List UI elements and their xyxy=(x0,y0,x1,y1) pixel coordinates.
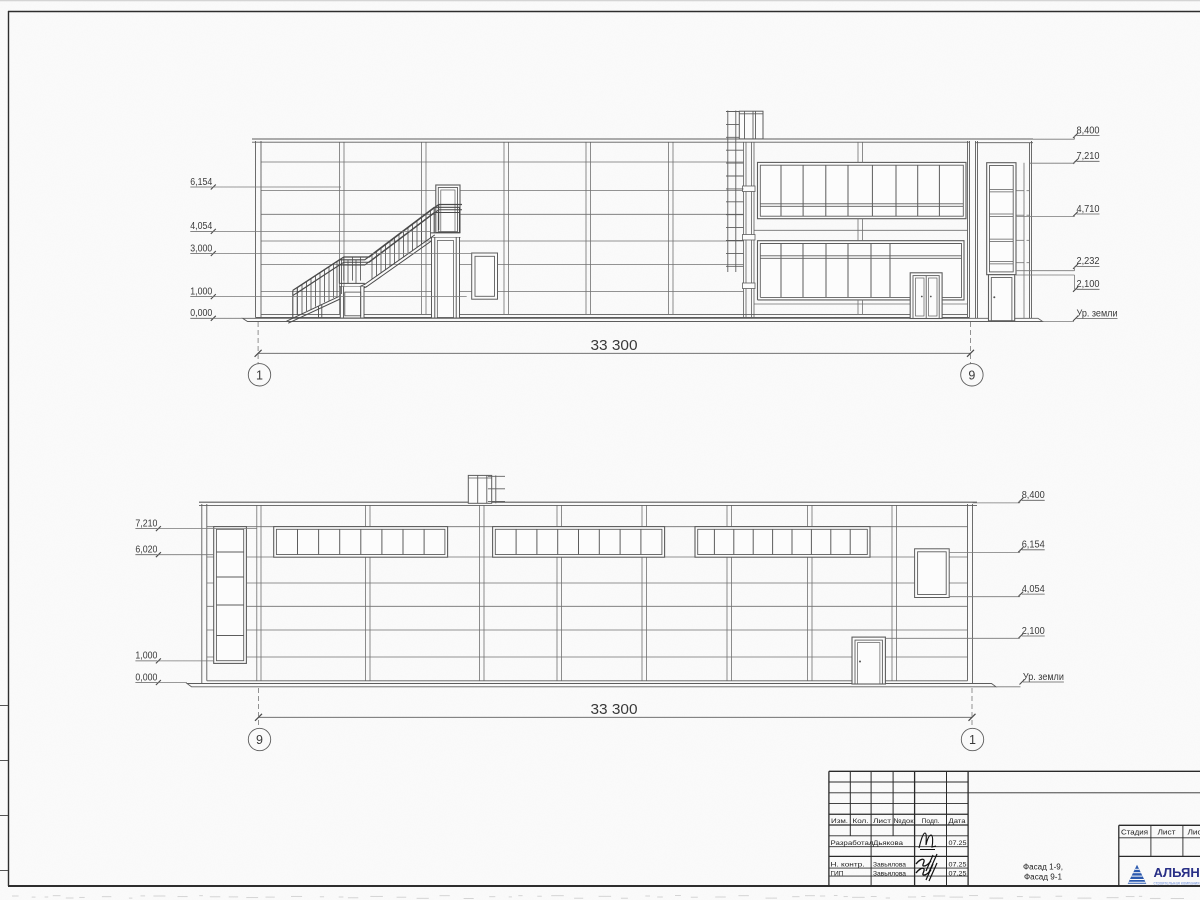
svg-text:Подп.: Подп. xyxy=(922,818,940,825)
svg-text:Изм.: Изм. xyxy=(831,818,848,825)
svg-text:АЛЬЯНС: АЛЬЯНС xyxy=(1154,865,1200,880)
svg-text:Дьякова: Дьякова xyxy=(873,840,904,847)
svg-text:№док: №док xyxy=(894,818,914,825)
svg-text:07.25: 07.25 xyxy=(949,861,968,868)
svg-text:8,400: 8,400 xyxy=(1077,125,1100,136)
svg-text:07.25: 07.25 xyxy=(949,840,968,847)
svg-text:1,000: 1,000 xyxy=(135,651,157,662)
svg-text:0,000: 0,000 xyxy=(190,308,212,319)
svg-text:Разработал: Разработал xyxy=(831,840,874,847)
svg-text:6,154: 6,154 xyxy=(190,177,212,188)
svg-text:6,020: 6,020 xyxy=(135,545,157,556)
svg-text:07.25: 07.25 xyxy=(949,871,968,878)
svg-text:Лист: Лист xyxy=(1158,830,1177,837)
svg-text:Кол.: Кол. xyxy=(853,818,869,825)
svg-text:3,000: 3,000 xyxy=(190,243,212,254)
svg-text:0,000: 0,000 xyxy=(135,672,157,683)
svg-text:1,000: 1,000 xyxy=(190,286,212,297)
svg-text:Ур. земли: Ур. земли xyxy=(1077,308,1118,319)
svg-text:4,054: 4,054 xyxy=(1022,584,1045,595)
svg-text:4,710: 4,710 xyxy=(1077,204,1100,215)
svg-text:Завьялова: Завьялова xyxy=(873,871,907,878)
svg-text:Фасад 9-1: Фасад 9-1 xyxy=(1024,872,1063,881)
svg-text:ГИП: ГИП xyxy=(831,871,844,878)
svg-text:8,400: 8,400 xyxy=(1022,490,1045,501)
svg-text:2,100: 2,100 xyxy=(1077,279,1100,290)
svg-text:7,210: 7,210 xyxy=(135,518,157,529)
svg-text:9: 9 xyxy=(256,733,263,747)
svg-text:1: 1 xyxy=(256,368,263,382)
svg-text:Фасад 1-9,: Фасад 1-9, xyxy=(1023,863,1063,872)
svg-text:Н. контр.: Н. контр. xyxy=(831,861,865,868)
svg-text:33 300: 33 300 xyxy=(591,702,638,718)
svg-text:7,210: 7,210 xyxy=(1077,151,1100,162)
svg-text:2,232: 2,232 xyxy=(1077,256,1100,267)
svg-text:Дата: Дата xyxy=(949,818,966,825)
svg-text:9: 9 xyxy=(968,368,975,382)
svg-text:1: 1 xyxy=(969,733,976,747)
svg-text:2,100: 2,100 xyxy=(1022,626,1045,637)
svg-text:строительная компания: строительная компания xyxy=(1154,881,1200,886)
svg-text:Стадия: Стадия xyxy=(1121,830,1148,837)
svg-text:Завьялова: Завьялова xyxy=(873,861,907,868)
svg-text:33 300: 33 300 xyxy=(591,338,638,354)
svg-text:Лист: Лист xyxy=(1188,830,1200,837)
svg-text:Лист: Лист xyxy=(873,818,891,825)
svg-text:Ур. земли: Ур. земли xyxy=(1023,672,1064,683)
svg-text:6,154: 6,154 xyxy=(1022,540,1045,551)
svg-text:4,054: 4,054 xyxy=(190,221,212,232)
